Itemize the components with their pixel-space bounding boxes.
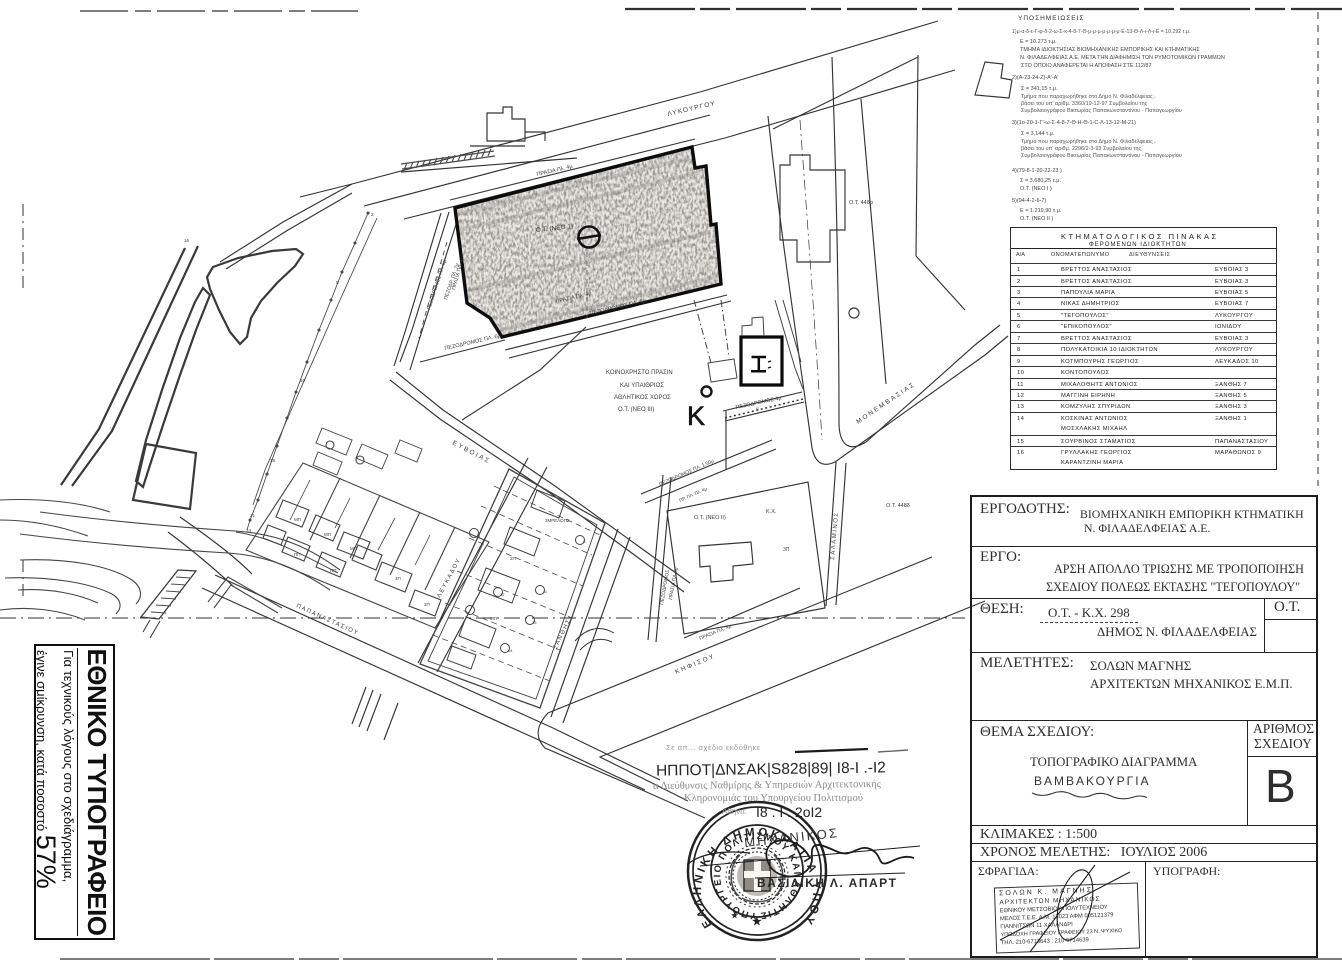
svg-text:ΠΠ: ΠΠ xyxy=(294,552,301,557)
svg-text:ΠΕΖΟΔΡΟΜΟΣ ΠΛ. 5μ: ΠΕΖΟΔΡΟΜΟΣ ΠΛ. 5μ xyxy=(426,259,448,311)
svg-text:Ο.Τ. 448α: Ο.Τ. 448α xyxy=(849,200,874,206)
svg-text:ΚΟΙΝΟΧΡΗΣΤΟ ΠΡΑΣΙΝ: ΚΟΙΝΟΧΡΗΣΤΟ ΠΡΑΣΙΝ xyxy=(606,370,673,376)
svg-text:ΕΥΒΟΙΑΣ: ΕΥΒΟΙΑΣ xyxy=(451,440,492,466)
svg-text:ΜΠ: ΜΠ xyxy=(294,517,301,522)
svg-text:Ο.Τ. (ΝΕΟ ΙΙ): Ο.Τ. (ΝΕΟ ΙΙ) xyxy=(694,515,726,521)
svg-text:16: 16 xyxy=(184,238,190,243)
svg-text:ΠΡ. ΠΛ. Πλ. 4μ: ΠΡ. ΠΛ. Πλ. 4μ xyxy=(678,486,708,503)
svg-text:★: ★ xyxy=(752,916,762,928)
svg-text:ΠΑΠΑΝΑΣΤΑΣΙΟΥ: ΠΑΠΑΝΑΣΤΑΣΙΟΥ xyxy=(295,603,359,637)
svg-text:3Π: 3Π xyxy=(510,556,516,561)
svg-text:ΠΡΑΣΙΑ Πλ. 4μ: ΠΡΑΣΙΑ Πλ. 4μ xyxy=(536,164,573,178)
svg-text:14: 14 xyxy=(508,648,513,653)
svg-text:ΜΠ: ΜΠ xyxy=(490,616,497,621)
svg-text:ΚΗΦΙΣΟΥ: ΚΗΦΙΣΟΥ xyxy=(674,653,717,676)
svg-text:Κ.Χ.: Κ.Χ. xyxy=(766,509,777,515)
svg-text:ΚΑΙ ΥΠΑΙΘΡΙΟΣ: ΚΑΙ ΥΠΑΙΘΡΙΟΣ xyxy=(620,383,664,389)
svg-text:α: α xyxy=(756,406,759,411)
svg-text:C: C xyxy=(583,539,586,544)
svg-text:11: 11 xyxy=(543,589,548,594)
svg-text:3ΜΡΕΛΟΠΣ: 3ΜΡΕΛΟΠΣ xyxy=(545,518,570,523)
svg-text:Κ: Κ xyxy=(687,401,705,431)
svg-text:3Π: 3Π xyxy=(424,602,430,607)
svg-text:ΠΠ: ΠΠ xyxy=(330,568,337,573)
svg-text:Ο.Τ. (ΝΕΟ ΙΙΙ): Ο.Τ. (ΝΕΟ ΙΙΙ) xyxy=(618,407,654,413)
svg-text:21: 21 xyxy=(250,513,256,518)
svg-text:ΜΟΝΕΜΒΑΣΙΑΣ: ΜΟΝΕΜΒΑΣΙΑΣ xyxy=(855,381,917,426)
svg-text:ΠΕΖΟΔΡΟΜΟΣ ΠΛ. 1.50μ: ΠΕΖΟΔΡΟΜΟΣ ΠΛ. 1.50μ xyxy=(658,458,715,488)
svg-text:12: 12 xyxy=(500,592,505,597)
svg-text:ΜΠ: ΜΠ xyxy=(324,532,331,537)
svg-text:10: 10 xyxy=(300,378,306,383)
svg-text:★: ★ xyxy=(731,911,739,920)
svg-text:ΜΠ: ΜΠ xyxy=(350,546,357,551)
svg-text:24: 24 xyxy=(246,528,252,533)
svg-text:2: 2 xyxy=(371,212,374,217)
svg-text:13: 13 xyxy=(532,620,537,625)
svg-text:15: 15 xyxy=(270,458,276,463)
svg-text:ΑΘΛΗΤΙΚΟΣ ΧΩΡΟΣ: ΑΘΛΗΤΙΚΟΣ ΧΩΡΟΣ xyxy=(614,395,671,401)
svg-text:3Π: 3Π xyxy=(783,547,790,553)
svg-text:3Π: 3Π xyxy=(395,576,401,581)
svg-text:ΠΡΑΣΙΑ ΠΛ. 4μ: ΠΡΑΣΙΑ ΠΛ. 4μ xyxy=(699,623,733,641)
svg-text:Ο.Τ. 448δ: Ο.Τ. 448δ xyxy=(886,503,910,509)
